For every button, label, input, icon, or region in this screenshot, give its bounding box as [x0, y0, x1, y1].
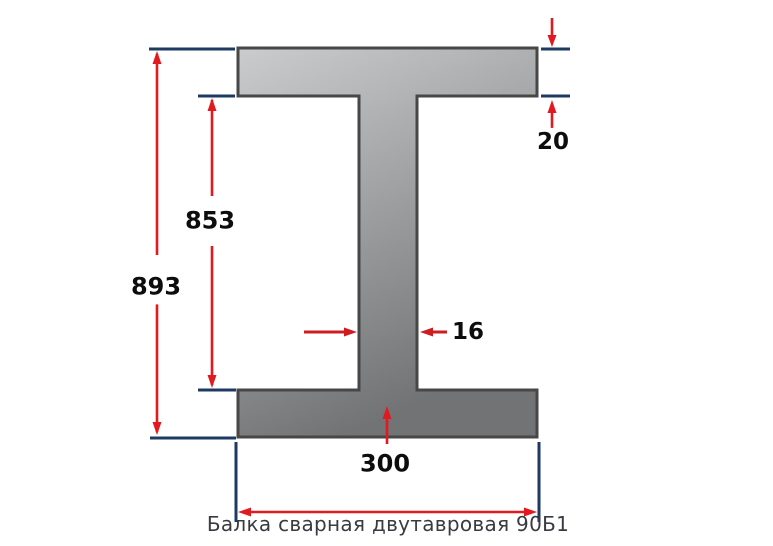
- dim-20-arrowhead-down: [548, 35, 557, 47]
- dim-853-arrowhead-up: [208, 98, 217, 111]
- dim-label-web-thickness: 16: [447, 318, 489, 346]
- dim-16-arrowhead-right: [344, 328, 357, 337]
- dim-label-flange-width: 300: [354, 446, 416, 481]
- dim-893-arrowhead-down: [153, 422, 162, 435]
- ibeam-drawing-canvas: 893 853 20 16 300 Балка сварная двутавро…: [0, 0, 773, 546]
- dimension-inner-height-853: [208, 98, 217, 388]
- dimension-flange-thickness-20: [548, 18, 557, 128]
- dim-label-overall-height: 893: [125, 269, 187, 304]
- dim-16-arrowhead-left: [420, 328, 433, 337]
- dim-893-arrowhead-up: [153, 51, 162, 64]
- dim-20-arrowhead-up: [548, 100, 557, 113]
- dim-label-flange-thickness: 20: [532, 128, 574, 156]
- dimension-overall-height-893: [153, 51, 162, 435]
- dim-853-arrowhead-down: [208, 375, 217, 388]
- dim-label-inner-web-height: 853: [179, 203, 241, 238]
- figure-caption: Балка сварная двутавровая 90Б1: [207, 512, 569, 536]
- i-beam-cross-section: [238, 48, 537, 437]
